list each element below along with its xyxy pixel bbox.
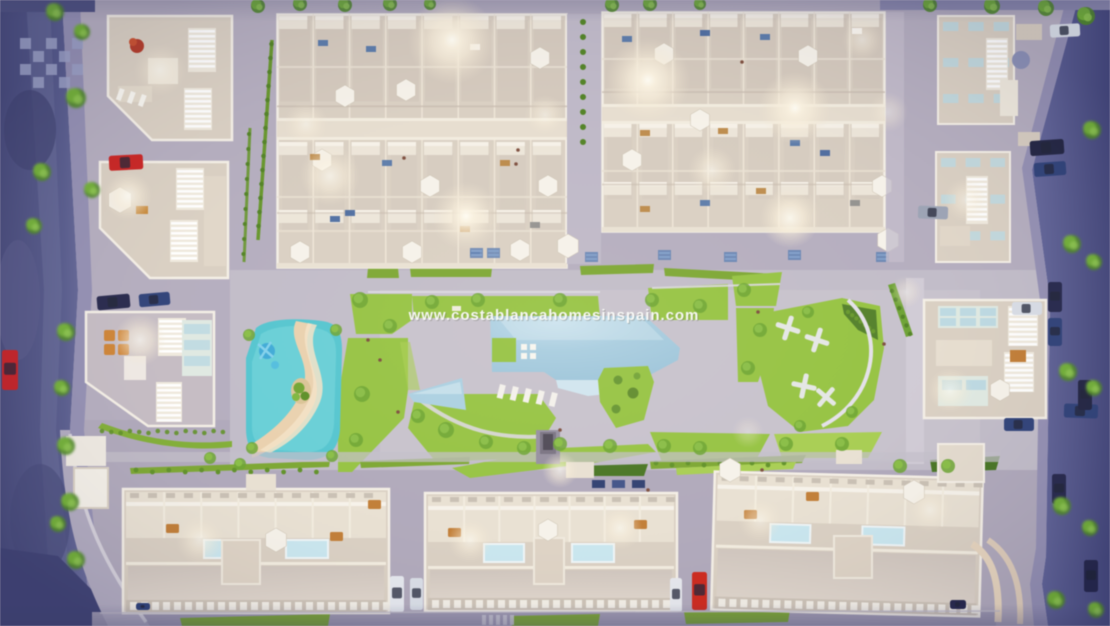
- svg-text:www.costablancahomesinspain.co: www.costablancahomesinspain.com: [408, 307, 700, 324]
